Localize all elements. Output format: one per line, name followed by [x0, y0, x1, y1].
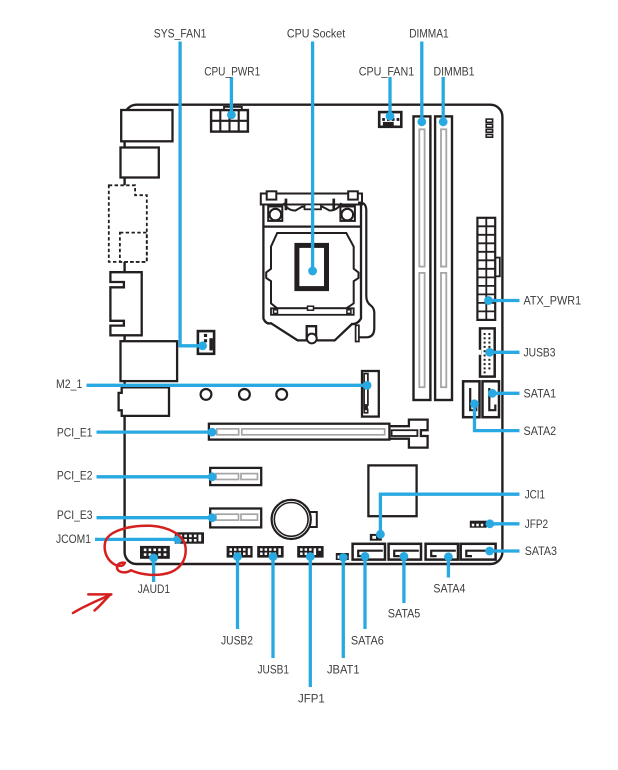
svg-text:JAUD1: JAUD1 — [138, 582, 170, 596]
svg-text:M2_1: M2_1 — [56, 377, 82, 391]
svg-text:JFP2: JFP2 — [525, 517, 549, 531]
svg-text:JUSB3: JUSB3 — [524, 346, 556, 360]
svg-text:PCI_E1: PCI_E1 — [57, 425, 93, 439]
svg-text:JUSB1: JUSB1 — [258, 663, 290, 677]
svg-text:PCI_E2: PCI_E2 — [57, 469, 93, 483]
svg-text:JUSB2: JUSB2 — [221, 634, 253, 648]
svg-text:SYS_FAN1: SYS_FAN1 — [154, 27, 207, 41]
svg-text:JBAT1: JBAT1 — [327, 663, 360, 677]
svg-text:ATX_PWR1: ATX_PWR1 — [524, 294, 582, 308]
svg-text:SATA3: SATA3 — [525, 544, 557, 558]
svg-text:JCI1: JCI1 — [525, 487, 545, 501]
svg-text:SATA5: SATA5 — [388, 607, 421, 621]
svg-text:SATA6: SATA6 — [351, 634, 384, 648]
svg-text:DIMMB1: DIMMB1 — [434, 65, 475, 79]
svg-text:SATA4: SATA4 — [433, 581, 465, 595]
svg-text:JCOM1: JCOM1 — [56, 532, 91, 546]
svg-text:SATA2: SATA2 — [524, 424, 557, 438]
svg-text:CPU_PWR1: CPU_PWR1 — [204, 65, 260, 79]
svg-text:SATA1: SATA1 — [524, 387, 557, 401]
svg-text:CPU Socket: CPU Socket — [287, 27, 346, 41]
svg-text:DIMMA1: DIMMA1 — [409, 27, 449, 41]
svg-text:CPU_FAN1: CPU_FAN1 — [359, 65, 415, 79]
svg-text:JFP1: JFP1 — [298, 692, 325, 706]
svg-text:PCI_E3: PCI_E3 — [57, 508, 93, 522]
